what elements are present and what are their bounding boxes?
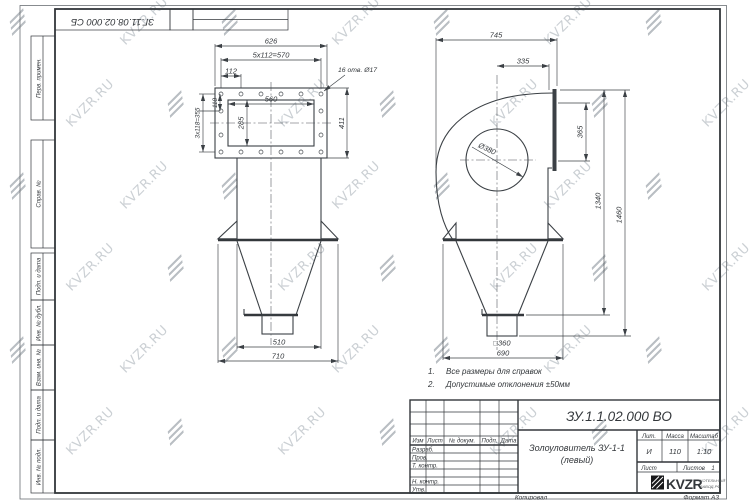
- dim-411: 411: [337, 117, 346, 129]
- row-utv: Утв.: [411, 488, 426, 494]
- col-vzam-inv: Взам. инв. №: [36, 348, 43, 386]
- note-1-text: Все размеры для справок: [446, 367, 543, 376]
- dim-560: 560: [265, 95, 278, 104]
- th-podp: Подп.: [482, 439, 498, 445]
- dim-5x112: 5x112=570: [253, 51, 291, 60]
- dim-3x118: 3x118=355: [195, 107, 202, 138]
- outer-border: [20, 6, 727, 500]
- dim-1340: 1340: [594, 192, 603, 210]
- part-name-line2: (левый): [561, 455, 593, 465]
- dim-690: 690: [497, 349, 510, 358]
- note-2-num: 2.: [427, 380, 435, 389]
- title-block: Изм Лист № докум. Подп. Дата Разраб. Про…: [410, 400, 725, 500]
- dim-1460: 1460: [615, 206, 624, 224]
- left-margin-columns: Перв. примен. Справ. № Подп. и дата Инв.…: [31, 36, 55, 493]
- col-inv-podl: Инв. № подл.: [36, 448, 43, 485]
- row-prov: Пров.: [412, 456, 428, 462]
- val-masshtab: 1:10: [697, 447, 712, 456]
- front-gusset-left: [218, 221, 237, 239]
- side-inlet-flange: [553, 89, 557, 171]
- sheet-frame: [20, 6, 727, 500]
- row-tkontr: Т. контр.: [412, 464, 438, 470]
- col-sprav-n: Справ. №: [36, 180, 43, 208]
- th-massa: Масса: [666, 434, 684, 440]
- th-ndokum: № докум.: [449, 438, 475, 445]
- side-cone-left: [456, 241, 487, 315]
- dim-sq360: □360: [493, 339, 511, 348]
- dim-365: 365: [576, 125, 585, 138]
- th-lit: Лит.: [641, 434, 656, 440]
- dim-510: 510: [273, 338, 286, 347]
- th-masshtab: Масштаб: [690, 434, 719, 440]
- kvzr-logo-sub1: КОТЕЛЬНЫЙ: [700, 478, 725, 483]
- side-cone-right: [518, 241, 548, 315]
- dim-112: 112: [225, 67, 238, 76]
- front-cone-right: [296, 241, 321, 315]
- col-podp-data-1: Подп. и дата: [37, 257, 43, 295]
- part-name-line1: Золоуловитель ЗУ-1-1: [529, 443, 625, 453]
- side-outlet-box: [487, 315, 517, 336]
- side-gusset-right: [548, 223, 563, 239]
- kvzr-logo-sub2: ЗАВОД.РФ: [700, 484, 721, 489]
- top-doc-number-block: ЗГ.11.08.02.000 СБ: [55, 9, 288, 30]
- dim-335: 335: [517, 57, 530, 66]
- front-outlet-box: [262, 315, 293, 334]
- dim-710: 710: [272, 352, 285, 361]
- notes: 1. Все размеры для справок 2. Допустимые…: [427, 367, 570, 389]
- th-listov: Листов: [682, 466, 705, 472]
- kvzr-logo: KVZR КОТЕЛЬНЫЙ ЗАВОД.РФ: [651, 476, 725, 493]
- front-gusset-right: [321, 221, 338, 239]
- val-lit: И: [646, 447, 652, 456]
- dim-285: 285: [237, 116, 246, 130]
- col-inv-dubl: Инв. № дубл.: [36, 304, 43, 341]
- th-izm: Изм: [412, 439, 423, 445]
- note-1-num: 1.: [428, 367, 435, 376]
- engineering-drawing: ЗГ.11.08.02.000 СБ Перв. примен. Справ. …: [0, 0, 750, 500]
- val-listov: 1: [711, 466, 714, 472]
- side-view: 745 335 Ø380 365 1340 1460 □360 690: [436, 31, 631, 361]
- designation: ЗУ.1.1.02.000 ВО: [566, 409, 672, 424]
- val-massa: 110: [669, 447, 682, 456]
- row-nkontr: Н. контр.: [412, 480, 439, 486]
- dim-626: 626: [265, 37, 278, 46]
- top-doc-number: ЗГ.11.08.02.000 СБ: [71, 16, 154, 27]
- col-podp-data-2: Подп. и дата: [37, 396, 43, 434]
- format-label: Формат А3: [683, 495, 719, 500]
- kopiroval-label: Копировал: [515, 495, 548, 500]
- dim-holes: 16 отв. Ø17: [338, 67, 377, 74]
- front-view: 626 5x112=570 112 16 отв. Ø17 560 285 41…: [195, 37, 378, 364]
- side-volute-scroll: [436, 93, 554, 240]
- th-list2: Лист: [640, 466, 656, 472]
- dim-118: 118: [212, 97, 219, 108]
- th-list: Лист: [426, 439, 442, 445]
- side-duct-bottom: [548, 168, 552, 240]
- row-razrab: Разраб.: [412, 448, 434, 454]
- drawing-sheet: KVZR.RUKVZR.RUKVZR.RUKVZR.RUKVZR.RUKVZR.…: [0, 0, 750, 500]
- dim-d380: Ø380: [476, 140, 498, 157]
- th-data: Дата: [500, 439, 517, 445]
- kvzr-logo-text: KVZR: [666, 476, 703, 492]
- note-2-text: Допустимые отклонения ±50мм: [445, 380, 570, 389]
- col-perv-primen: Перв. примен.: [37, 58, 43, 98]
- front-cone-left: [237, 241, 262, 315]
- dim-745: 745: [490, 31, 503, 40]
- side-dimensions: 745 335 Ø380 365 1340 1460 □360 690: [436, 31, 631, 361]
